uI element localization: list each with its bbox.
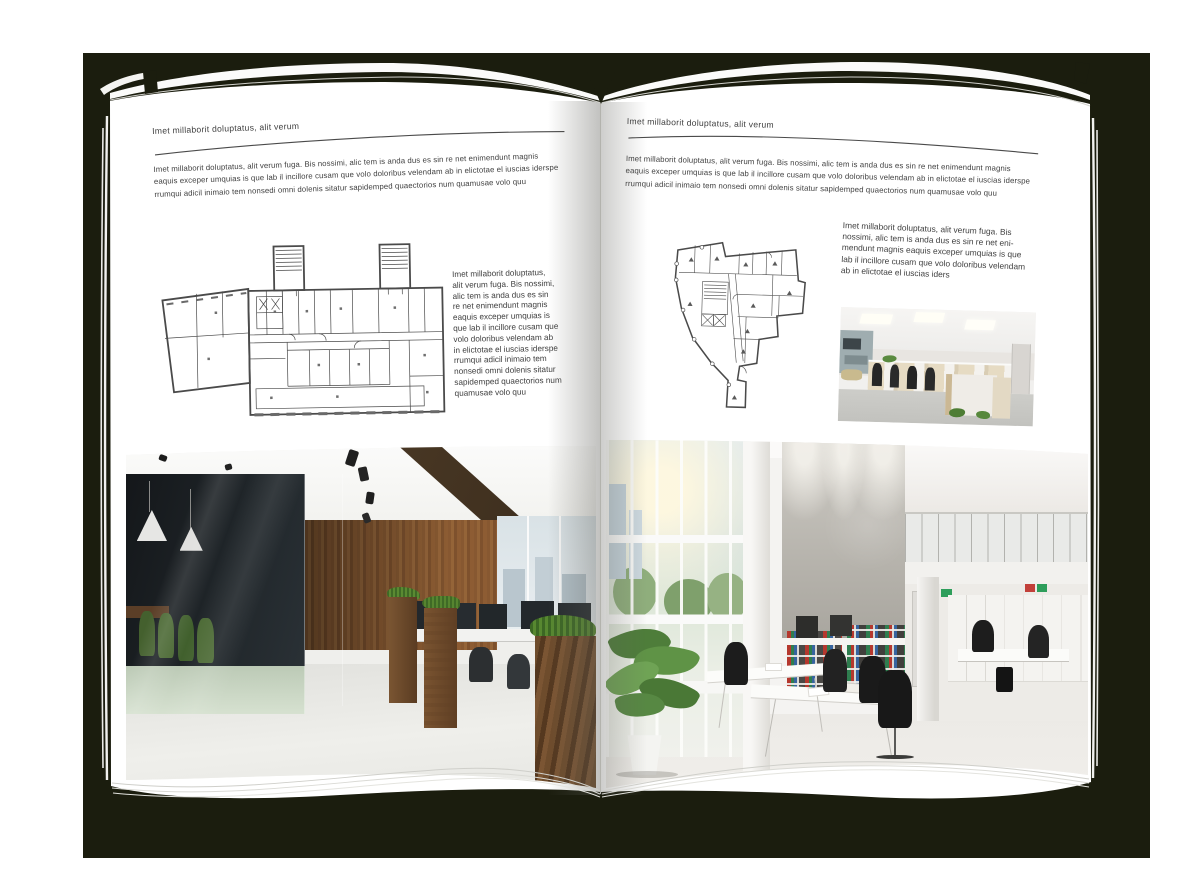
monitor — [830, 615, 852, 637]
door — [1010, 344, 1031, 395]
planter-box — [424, 608, 457, 728]
photo-office-meeting-room — [126, 446, 596, 798]
office-chair — [469, 647, 493, 682]
office-chair — [889, 364, 899, 387]
safety-sign-red — [1025, 584, 1035, 592]
office-chair — [972, 620, 994, 652]
balcony-rail — [905, 512, 1088, 565]
column — [743, 440, 770, 771]
cabinet-wall — [948, 595, 1088, 682]
sofa — [841, 369, 863, 381]
monitor — [796, 616, 818, 638]
light-panel — [913, 313, 945, 324]
office-chair — [507, 654, 531, 689]
office-chair — [872, 363, 882, 386]
office-chair — [823, 649, 847, 692]
desk — [780, 638, 905, 645]
office-chair — [925, 367, 935, 390]
front-cabinet — [992, 377, 1011, 419]
plant — [882, 355, 896, 362]
meeting-room-glass — [126, 474, 305, 713]
floor-plan-right — [649, 222, 812, 422]
chair-stem — [894, 728, 896, 757]
glass-frame — [304, 474, 305, 713]
waste-bin — [996, 667, 1013, 692]
right-page-top-block: Imet millaborit doluptatus, alit verum I… — [625, 116, 1051, 201]
light-panel — [859, 313, 893, 324]
office-chair — [1028, 625, 1050, 657]
tv-screen — [842, 338, 861, 350]
spine-line — [600, 102, 601, 794]
left-page-top-block: Imet millaborit doluptatus, alit verum I… — [152, 111, 578, 201]
round-column — [917, 577, 939, 721]
track-spotlight — [365, 491, 375, 504]
paper-sheet — [765, 663, 781, 671]
gutter-shadow-right — [601, 102, 647, 795]
office-chair-front — [878, 670, 912, 728]
office-chair — [907, 366, 917, 389]
glass-partition — [342, 474, 343, 706]
safety-sign-green — [1037, 584, 1047, 592]
ceiling-spot — [224, 463, 232, 471]
photo-office-loft — [606, 440, 1088, 800]
office-chair — [724, 642, 748, 685]
glass-reflection — [126, 474, 305, 713]
photo-office-workstations — [838, 307, 1036, 426]
book-mockup-stage: Imet millaborit doluptatus, alit verum I… — [0, 0, 1200, 891]
floor-plan-left — [155, 235, 450, 430]
planter-box — [389, 597, 417, 703]
right-side-text: Imet millaborit doluptatus, alit verum f… — [841, 220, 1053, 285]
gutter-shadow-left — [548, 101, 601, 795]
monitor — [479, 604, 507, 629]
light-panel — [964, 320, 996, 331]
shelf-shadow — [844, 355, 867, 365]
